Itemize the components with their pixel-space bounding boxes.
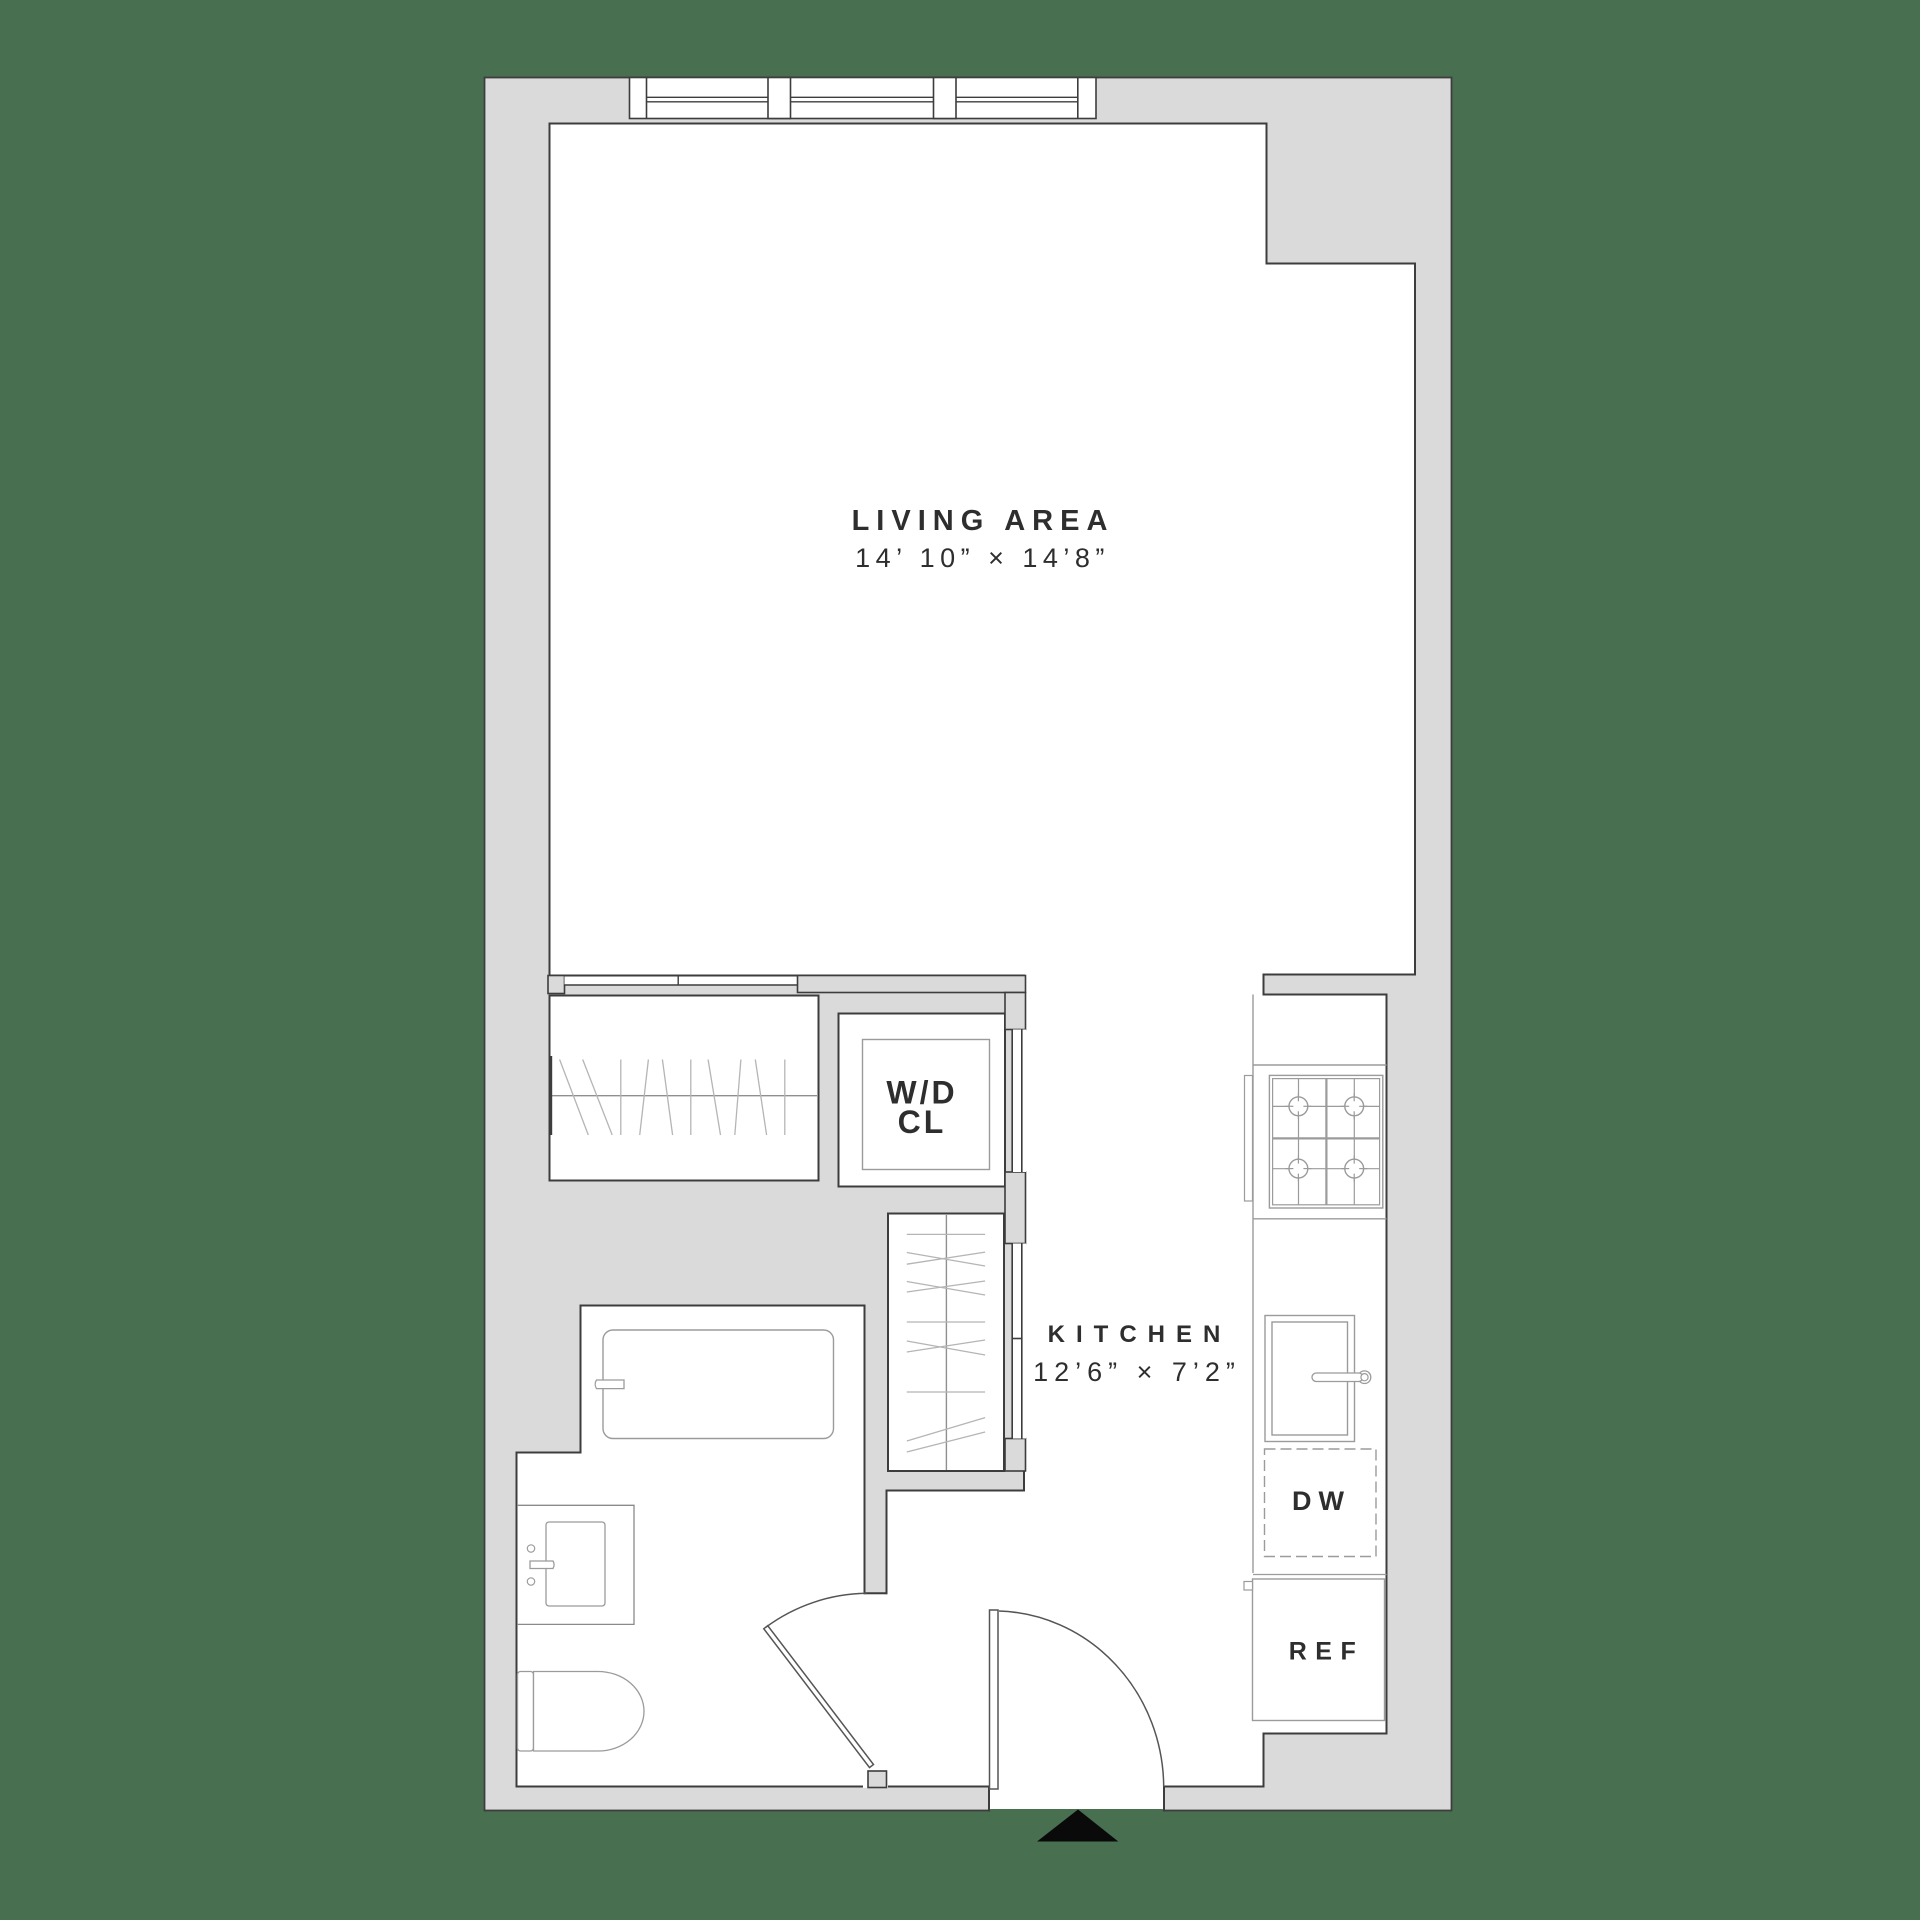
svg-text:12’6” × 7’2”: 12’6” × 7’2” xyxy=(1033,1357,1241,1387)
svg-text:REF: REF xyxy=(1289,1638,1365,1666)
svg-text:DW: DW xyxy=(1292,1486,1351,1516)
svg-text:LIVING AREA: LIVING AREA xyxy=(852,505,1115,537)
svg-text:CL: CL xyxy=(898,1104,947,1140)
svg-text:14’ 10” × 14’8”: 14’ 10” × 14’8” xyxy=(855,543,1110,573)
svg-text:KITCHEN: KITCHEN xyxy=(1048,1321,1232,1348)
